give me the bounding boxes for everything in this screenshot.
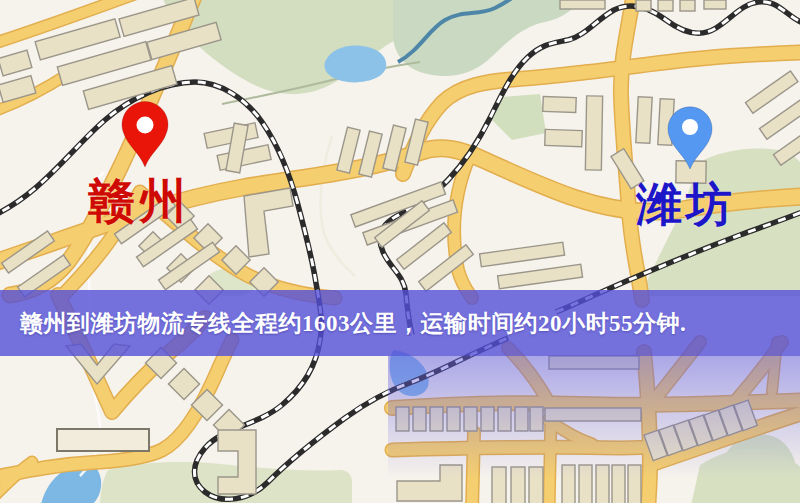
map-canvas[interactable]: 赣州 潍坊 赣州到潍坊物流专线全程约1603公里，运输时间约20小时55分钟. <box>0 0 800 503</box>
origin-city-label: 赣州 <box>88 170 190 233</box>
route-map-graphic <box>0 0 800 503</box>
destination-city-label: 潍坊 <box>636 174 736 236</box>
destination-pin-hole <box>682 119 698 135</box>
origin-pin-hole <box>137 117 154 134</box>
route-info-text: 赣州到潍坊物流专线全程约1603公里，运输时间约20小时55分钟. <box>20 308 686 339</box>
route-info-banner: 赣州到潍坊物流专线全程约1603公里，运输时间约20小时55分钟. <box>0 290 800 356</box>
